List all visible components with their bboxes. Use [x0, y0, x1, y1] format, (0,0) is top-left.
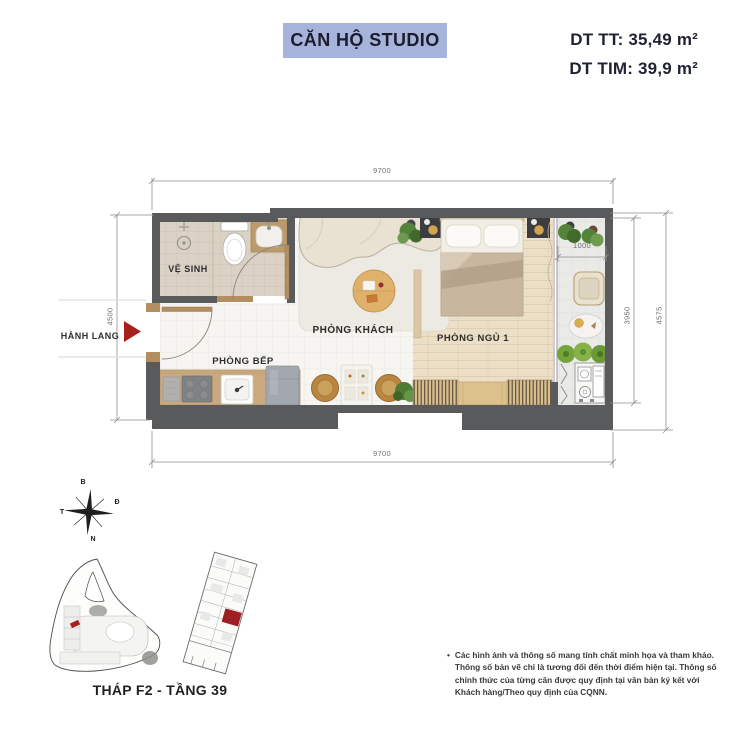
balcony-chair	[574, 272, 604, 305]
dim-bottom: 9700	[352, 449, 412, 458]
kitchen-fixtures	[160, 366, 300, 405]
stove-icon	[182, 376, 212, 402]
plant-icon	[557, 343, 609, 364]
area-tim-label: DT TIM: 39,9 m²	[513, 59, 698, 79]
site-plan-thumbnail	[50, 559, 160, 671]
bathroom-door-leaf	[285, 245, 289, 299]
tv-console	[414, 270, 421, 338]
dish-rack	[163, 377, 180, 401]
corridor-label: HÀNH LANG	[50, 331, 130, 341]
bed	[440, 213, 524, 316]
dim-balcony: 1000	[562, 241, 602, 250]
glass-wall	[554, 218, 557, 382]
window-louver	[413, 380, 458, 405]
compass-north-label: B	[75, 479, 91, 486]
dim-top: 9700	[352, 166, 412, 175]
coffee-table	[353, 270, 395, 312]
floor-plan-drawing	[0, 0, 730, 730]
ac-unit	[575, 363, 605, 403]
kitchen-sink-icon	[221, 375, 253, 404]
compass-south-label: N	[85, 536, 101, 543]
room-label-kitchen: PHÒNG BẾP	[193, 356, 293, 367]
compass-west-label: T	[54, 509, 70, 516]
disclaimer-body: Các hình ảnh và thông số mang tính chất …	[455, 649, 719, 699]
unit-type-title: CĂN HỘ STUDIO	[283, 23, 447, 58]
entrance-door-leaf	[162, 307, 212, 312]
dining-chair	[312, 375, 339, 402]
toilet-icon	[221, 222, 248, 265]
disclaimer-bullet: •	[447, 649, 450, 699]
disclaimer-text: • Các hình ảnh và thông số mang tính chấ…	[447, 649, 719, 699]
room-label-bathroom: VỆ SINH	[158, 264, 218, 274]
window-louver	[507, 380, 552, 405]
room-label-living: PHÒNG KHÁCH	[303, 325, 403, 336]
window-bench	[458, 382, 507, 405]
tower-floor-label: THÁP F2 - TẦNG 39	[75, 682, 245, 698]
compass-east-label: Đ	[109, 499, 125, 506]
floor-plate-thumbnail	[183, 552, 257, 674]
fridge-icon	[266, 366, 299, 405]
area-tt-label: DT TT: 35,49 m²	[513, 30, 698, 50]
dining-table	[341, 365, 372, 409]
dim-right-outer: 4575	[655, 296, 664, 336]
compass-icon	[62, 487, 115, 536]
balcony-table	[569, 314, 603, 338]
room-label-bedroom: PHÒNG NGỦ 1	[423, 333, 523, 344]
floor-plan-page: CĂN HỘ STUDIO DT TT: 35,49 m² DT TIM: 39…	[0, 0, 730, 730]
dim-right-inner: 3950	[623, 296, 632, 336]
bathroom-sink-icon	[251, 220, 287, 252]
